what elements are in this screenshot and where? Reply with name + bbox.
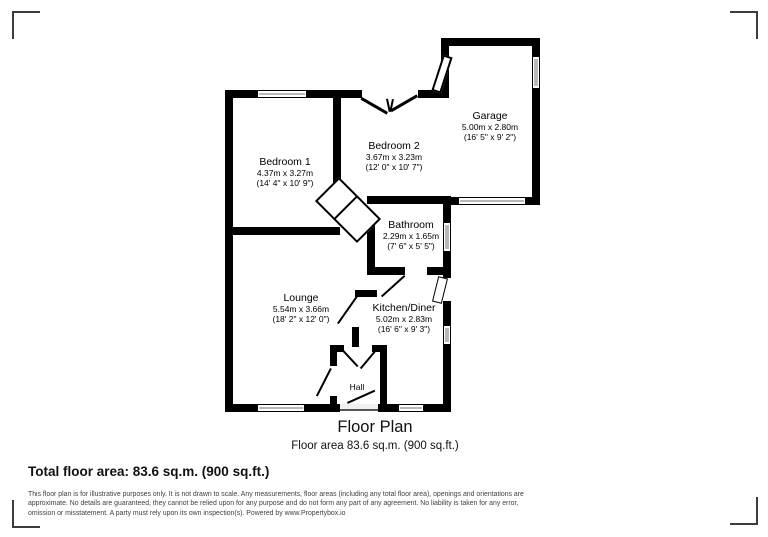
room-label-hall: Hall [332, 382, 382, 392]
wall-bathroom-bottom-b [427, 267, 451, 275]
room-label-garage: Garage 5.00m x 2.80m (16' 5" x 9' 2") [443, 110, 537, 142]
window-kitchen-bottom [398, 404, 424, 412]
window-garage-bottom [458, 197, 526, 205]
room-name: Bedroom 2 [343, 140, 445, 152]
wall-hall-left-a [330, 352, 337, 366]
plan-subtitle: Floor area 83.6 sq.m. (900 sq.ft.) [150, 440, 600, 452]
room-dims-imperial: (12' 0" x 10' 7") [343, 162, 445, 172]
room-dims-metric: 5.54m x 3.66m [238, 304, 364, 314]
disclaimer-line-1: This floor plan is for illustrative purp… [28, 490, 588, 499]
floor-plan-canvas: Bedroom 1 4.37m x 3.27m (14' 4" x 10' 9"… [0, 0, 768, 537]
room-name: Lounge [238, 292, 364, 304]
window-lounge-bottom [257, 404, 305, 412]
window-bedroom1-top [257, 90, 307, 98]
front-door-threshold [340, 404, 378, 411]
wall-bathroom-top [367, 196, 451, 204]
room-dims-imperial: (18' 2" x 12' 0") [238, 314, 364, 324]
disclaimer-line-3: omission or misstatement. A party must r… [28, 509, 588, 518]
door-leaf-bedroom2-left [361, 97, 388, 114]
wall-hall-right [380, 345, 387, 406]
floor-plan: Bedroom 1 4.37m x 3.27m (14' 4" x 10' 9"… [0, 0, 768, 537]
room-dims-metric: 5.00m x 2.80m [443, 122, 537, 132]
window-garage-right [532, 56, 540, 89]
plan-title: Floor Plan [150, 418, 600, 437]
room-dims-imperial: (7' 6" x 5' 5") [374, 241, 448, 251]
room-name: Kitchen/Diner [348, 302, 460, 314]
room-label-kitchen-diner: Kitchen/Diner 5.02m x 2.83m (16' 6" x 9'… [348, 302, 460, 334]
title-block: Floor Plan Floor area 83.6 sq.m. (900 sq… [150, 418, 600, 452]
wall-left [225, 90, 233, 412]
wall-hall-left-b [330, 396, 337, 406]
wall-right-d [443, 345, 451, 412]
disclaimer: This floor plan is for illustrative purp… [28, 490, 588, 518]
room-name: Bedroom 1 [225, 156, 345, 168]
total-floor-area: Total floor area: 83.6 sq.m. (900 sq.ft.… [28, 464, 269, 479]
room-dims-imperial: (16' 6" x 9' 3") [348, 324, 460, 334]
room-label-lounge: Lounge 5.54m x 3.66m (18' 2" x 12' 0") [238, 292, 364, 324]
room-dims-metric: 2.29m x 1.65m [374, 231, 448, 241]
wall-bedrooms-bottom [225, 227, 340, 235]
room-dims-imperial: (14' 4" x 10' 9") [225, 178, 345, 188]
room-dims-metric: 4.37m x 3.27m [225, 168, 345, 178]
room-label-bedroom-2: Bedroom 2 3.67m x 3.23m (12' 0" x 10' 7"… [343, 140, 445, 172]
door-leaf-hall-fold-left [342, 350, 358, 367]
door-panel-garage [431, 54, 452, 93]
room-dims-metric: 3.67m x 3.23m [343, 152, 445, 162]
room-label-bathroom: Bathroom 2.29m x 1.65m (7' 6" x 5' 5") [374, 219, 448, 251]
room-dims-metric: 5.02m x 2.83m [348, 314, 460, 324]
wall-garage-top [441, 38, 540, 46]
door-leaf-hall-fold-right [360, 351, 376, 369]
room-name: Bathroom [374, 219, 448, 231]
room-label-bedroom-1: Bedroom 1 4.37m x 3.27m (14' 4" x 10' 9"… [225, 156, 345, 188]
disclaimer-line-2: approximate. No details are guaranteed, … [28, 499, 588, 508]
room-name: Hall [332, 382, 382, 392]
room-dims-imperial: (16' 5" x 9' 2") [443, 132, 537, 142]
door-leaf-bedroom2-right [391, 95, 418, 112]
room-name: Garage [443, 110, 537, 122]
wall-bathroom-bottom-a [367, 267, 405, 275]
door-leaf-hall-lounge [316, 368, 332, 397]
door-leaf-bathroom [381, 275, 405, 297]
door-panel-kitchen-back [432, 276, 448, 304]
